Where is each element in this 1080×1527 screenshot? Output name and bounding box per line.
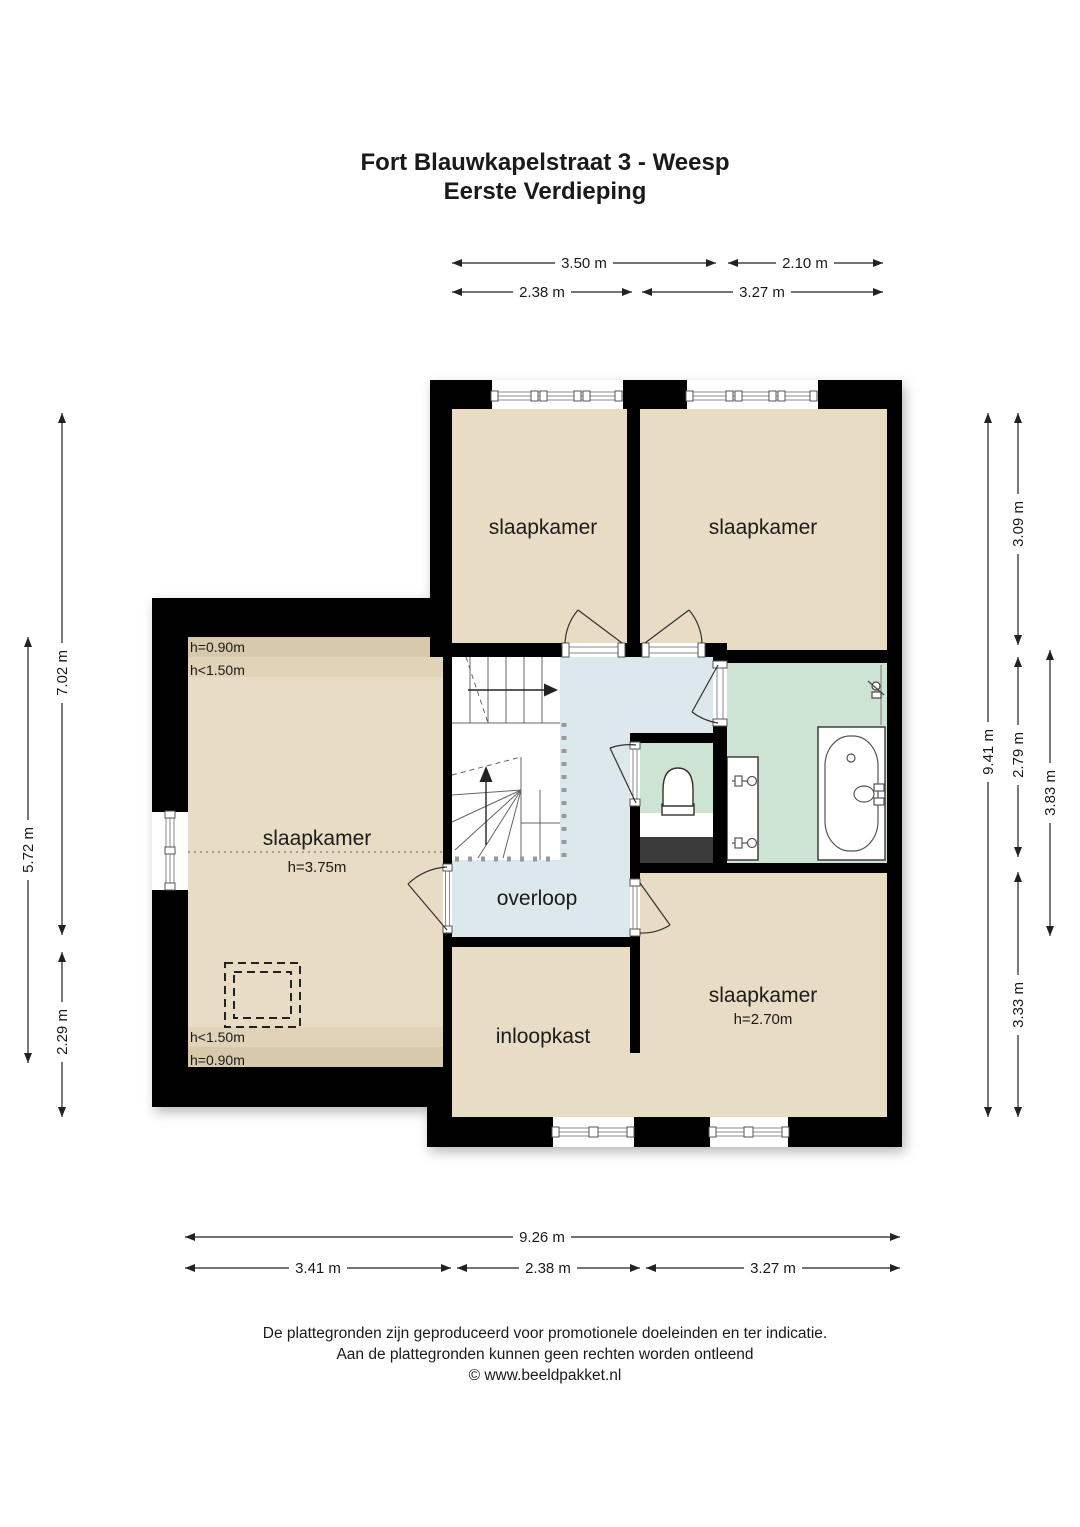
bedroom-left-height: h=3.75m <box>288 859 347 876</box>
doorframe-bedroom-top-left <box>562 643 625 657</box>
bedroom-bottom-label: slaapkamer <box>709 984 818 1007</box>
floorplan-page: Fort Blauwkapelstraat 3 - Weesp Eerste V… <box>0 0 1080 1527</box>
svg-text:9.26 m: 9.26 m <box>519 1229 565 1246</box>
dimension-bottom-327: 3.27 m <box>646 1259 900 1277</box>
footer-copyright: © www.beeldpakket.nl <box>469 1367 622 1384</box>
svg-text:3.09 m: 3.09 m <box>1010 501 1027 547</box>
toilet-fixture <box>662 768 694 815</box>
dimension-bottom-238: 2.38 m <box>457 1259 640 1277</box>
staircase <box>452 657 564 860</box>
dimension-top-327: 3.27 m <box>642 283 883 301</box>
radiator <box>727 757 758 860</box>
window-left <box>152 811 188 890</box>
bedroom-bottom-height: h=2.70m <box>734 1011 793 1028</box>
window-bottom-left <box>552 1117 634 1147</box>
bedroom-left-edge-bottom1: h<1.50m <box>190 1029 245 1045</box>
landing-label: overloop <box>497 887 578 910</box>
svg-text:3.27 m: 3.27 m <box>739 284 785 301</box>
dimension-bottom-341: 3.41 m <box>185 1259 451 1277</box>
bedroom-left-edge-top1: h=0.90m <box>190 639 245 655</box>
dimension-right-383: 3.83 m <box>1041 650 1059 936</box>
bedroom-top-left-label: slaapkamer <box>489 516 598 539</box>
bedroom-left-label: slaapkamer <box>263 827 372 850</box>
window-bottom-right <box>709 1117 789 1147</box>
svg-text:3.83 m: 3.83 m <box>1042 770 1059 816</box>
dimension-right-333: 3.33 m <box>1009 872 1027 1117</box>
page-title-line2: Eerste Verdieping <box>444 178 647 205</box>
dimension-right-309: 3.09 m <box>1009 413 1027 645</box>
svg-text:3.50 m: 3.50 m <box>561 255 607 272</box>
svg-text:2.38 m: 2.38 m <box>525 1260 571 1277</box>
doorframe-bedroom-bottom <box>630 879 640 936</box>
svg-text:9.41 m: 9.41 m <box>980 729 997 775</box>
svg-text:3.27 m: 3.27 m <box>750 1260 796 1277</box>
dimension-top-350: 3.50 m <box>452 254 716 272</box>
dimension-left-702: 7.02 m <box>53 413 71 935</box>
footer-disclaimer-line1: De plattegronden zijn geproduceerd voor … <box>263 1325 827 1342</box>
doorframe-bedroom-top-right <box>642 643 705 657</box>
svg-text:5.72 m: 5.72 m <box>20 827 37 873</box>
window-top-right <box>686 380 818 409</box>
svg-text:3.33 m: 3.33 m <box>1010 982 1027 1028</box>
shaft-void <box>640 837 713 863</box>
svg-text:2.38 m: 2.38 m <box>519 284 565 301</box>
dimension-right-279: 2.79 m <box>1009 657 1027 857</box>
page-title-line1: Fort Blauwkapelstraat 3 - Weesp <box>361 149 730 176</box>
dimension-bottom-926: 9.26 m <box>185 1228 900 1246</box>
dimension-left-572: 5.72 m <box>19 637 37 1063</box>
dimension-top-238: 2.38 m <box>452 283 632 301</box>
window-top-left <box>491 380 623 409</box>
dimension-right-941: 9.41 m <box>979 413 997 1117</box>
bedroom-top-right-label: slaapkamer <box>709 516 818 539</box>
closet-label: inloopkast <box>496 1025 591 1048</box>
floorplan-svg: Fort Blauwkapelstraat 3 - Weesp Eerste V… <box>0 0 1080 1527</box>
dimension-left-229: 2.29 m <box>53 952 71 1117</box>
floorplan: slaapkamer slaapkamer slaapkamer h=3.75m… <box>152 380 902 1147</box>
bedroom-left-edge-bottom2: h=0.90m <box>190 1052 245 1068</box>
svg-text:7.02 m: 7.02 m <box>54 650 71 696</box>
footer-disclaimer-line2: Aan de plattegronden kunnen geen rechten… <box>336 1346 753 1363</box>
toilet-shelf <box>640 813 713 837</box>
svg-text:2.79 m: 2.79 m <box>1010 732 1027 778</box>
bedroom-left-edge-top2: h<1.50m <box>190 662 245 678</box>
svg-text:3.41 m: 3.41 m <box>295 1260 341 1277</box>
dimension-top-210: 2.10 m <box>728 254 883 272</box>
doorframe-bedroom-left <box>443 864 452 933</box>
bathtub <box>818 727 885 860</box>
svg-text:2.10 m: 2.10 m <box>782 255 828 272</box>
doorframe-toilet <box>630 742 640 806</box>
svg-text:2.29 m: 2.29 m <box>54 1009 71 1055</box>
